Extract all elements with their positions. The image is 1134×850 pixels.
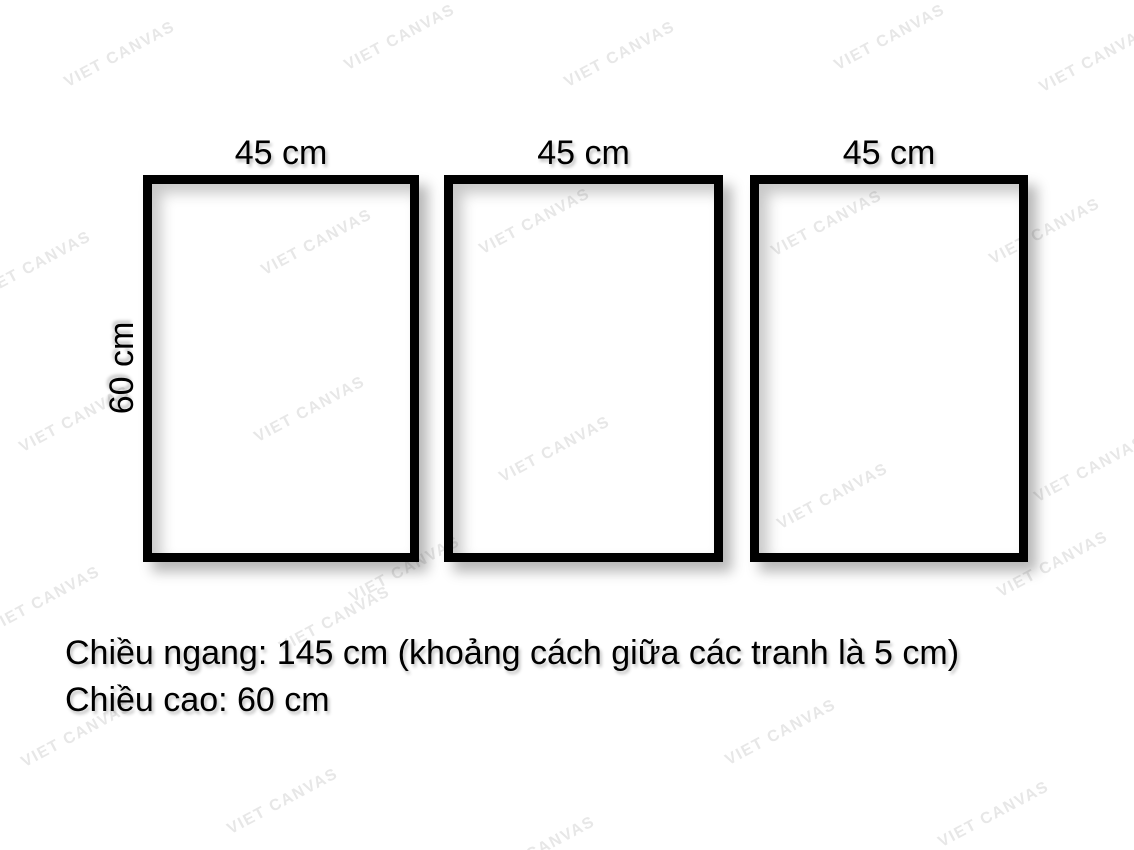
caption-line-1: Chiều ngang: 145 cm (khoảng cách giữa cá… <box>65 630 959 677</box>
watermark-text: VIET CANVAS <box>1032 433 1134 507</box>
watermark-text: VIET CANVAS <box>1037 23 1134 97</box>
caption-line-2: Chiều cao: 60 cm <box>65 677 959 724</box>
watermark-text: VIET CANVAS <box>62 18 179 92</box>
watermark-text: VIET CANVAS <box>0 228 94 302</box>
watermark-text: VIET CANVAS <box>0 563 103 637</box>
frame-2-width-label: 45 cm <box>444 133 723 173</box>
frame-3 <box>750 175 1028 562</box>
frame-3-width-label: 45 cm <box>750 133 1028 173</box>
watermark-text: VIET CANVAS <box>936 778 1053 850</box>
frame-1 <box>143 175 419 562</box>
frame-2 <box>444 175 723 562</box>
caption: Chiều ngang: 145 cm (khoảng cách giữa cá… <box>65 630 959 724</box>
canvas-root: VIET CANVASVIET CANVASVIET CANVASVIET CA… <box>0 0 1134 850</box>
watermark-text: VIET CANVAS <box>225 765 342 839</box>
frame-1-width-label: 45 cm <box>143 133 419 173</box>
watermark-text: VIET CANVAS <box>342 1 459 75</box>
frame-height-label: 60 cm <box>102 298 142 438</box>
watermark-text: VIET CANVAS <box>562 18 679 92</box>
watermark-text: VIET CANVAS <box>832 1 949 75</box>
watermark-text: VIET CANVAS <box>482 813 599 850</box>
